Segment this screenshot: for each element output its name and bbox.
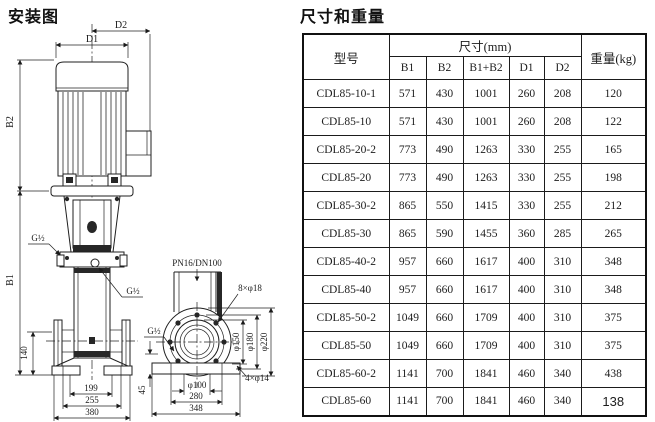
value-cell: 260 <box>509 108 544 136</box>
value-cell: 1141 <box>389 388 426 416</box>
model-cell: CDL85-30-2 <box>303 192 389 220</box>
table-row: CDL85-105714301001260208122 <box>303 108 646 136</box>
table-row: CDL85-207734901263330255198 <box>303 164 646 192</box>
value-cell: 348 <box>581 248 646 276</box>
pump-column <box>74 267 110 358</box>
value-cell: 310 <box>544 276 581 304</box>
pump-front-view <box>46 24 151 380</box>
value-cell: 208 <box>544 80 581 108</box>
dim-199-label: 199 <box>84 383 98 393</box>
col-header-b1: B1 <box>389 57 426 80</box>
value-cell: 310 <box>544 304 581 332</box>
value-cell: 1415 <box>463 192 509 220</box>
value-cell: 165 <box>581 136 646 164</box>
table-row: CDL85-50-210496601709400310375 <box>303 304 646 332</box>
value-cell: 340 <box>544 388 581 416</box>
model-cell: CDL85-10 <box>303 108 389 136</box>
value-cell: 330 <box>509 192 544 220</box>
flange-section-view: PN16/DN100 <box>137 258 275 417</box>
value-cell: 700 <box>426 360 463 388</box>
model-cell: CDL85-50-2 <box>303 304 389 332</box>
table-row: CDL85-30-28655501415330255212 <box>303 192 646 220</box>
table-row: CDL85-20-27734901263330255165 <box>303 136 646 164</box>
value-cell: 430 <box>426 108 463 136</box>
value-cell: 260 <box>509 80 544 108</box>
value-cell: 550 <box>426 192 463 220</box>
table-row: CDL85-308655901455360285265 <box>303 220 646 248</box>
dim-280-label: 280 <box>189 391 203 401</box>
col-header-weight: 重量(kg) <box>581 34 646 80</box>
value-cell: 208 <box>544 108 581 136</box>
dim-348-label: 348 <box>189 403 203 413</box>
g-half-port-label-flange: G½ <box>147 326 160 336</box>
model-cell: CDL85-10-1 <box>303 80 389 108</box>
value-cell: 212 <box>581 192 646 220</box>
value-cell: 265 <box>581 220 646 248</box>
value-cell: 1263 <box>463 136 509 164</box>
coupling-lantern <box>64 196 120 252</box>
value-cell: 285 <box>544 220 581 248</box>
value-cell: 138 <box>581 388 646 416</box>
dim-b2-label: B2 <box>5 116 16 128</box>
value-cell: 1841 <box>463 388 509 416</box>
dim-45-label: 45 <box>137 385 147 395</box>
value-cell: 310 <box>544 332 581 360</box>
fan-cover <box>56 62 128 91</box>
vent-port <box>91 259 99 267</box>
catalog-page: 安装图 尺寸和重量 <box>0 0 655 422</box>
dim-dia100-label: φ100 <box>188 380 207 390</box>
value-cell: 1263 <box>463 164 509 192</box>
value-cell: 310 <box>544 248 581 276</box>
col-header-b1b2: B1+B2 <box>463 57 509 80</box>
value-cell: 460 <box>509 360 544 388</box>
table-row: CDL85-10-15714301001260208120 <box>303 80 646 108</box>
model-cell: CDL85-50 <box>303 332 389 360</box>
value-cell: 700 <box>426 388 463 416</box>
value-cell: 438 <box>581 360 646 388</box>
dim-d2-label: D2 <box>115 20 127 31</box>
table-row: CDL85-6011417001841460340138 <box>303 388 646 416</box>
value-cell: 122 <box>581 108 646 136</box>
value-cell: 255 <box>544 164 581 192</box>
value-cell: 490 <box>426 136 463 164</box>
g-half-port-label-mid: G½ <box>126 286 139 296</box>
value-cell: 400 <box>509 248 544 276</box>
value-cell: 348 <box>581 276 646 304</box>
table-row: CDL85-5010496601709400310375 <box>303 332 646 360</box>
dim-dia150-label: φ150 <box>231 332 241 351</box>
dim-dia180-label: φ180 <box>245 332 255 351</box>
value-cell: 360 <box>509 220 544 248</box>
model-cell: CDL85-60-2 <box>303 360 389 388</box>
table-row: CDL85-60-211417001841460340438 <box>303 360 646 388</box>
value-cell: 590 <box>426 220 463 248</box>
dim-255-label: 255 <box>85 395 99 405</box>
value-cell: 340 <box>544 360 581 388</box>
base-plate-section <box>152 363 240 374</box>
value-cell: 1049 <box>389 332 426 360</box>
dim-b1-label: B1 <box>5 274 16 286</box>
value-cell: 1709 <box>463 304 509 332</box>
value-cell: 1709 <box>463 332 509 360</box>
value-cell: 1455 <box>463 220 509 248</box>
dim-140-label: 140 <box>19 346 29 360</box>
value-cell: 375 <box>581 304 646 332</box>
col-header-model: 型号 <box>303 34 389 80</box>
value-cell: 1841 <box>463 360 509 388</box>
motor-flange <box>51 186 133 196</box>
value-cell: 400 <box>509 332 544 360</box>
value-cell: 460 <box>509 388 544 416</box>
value-cell: 773 <box>389 164 426 192</box>
value-cell: 490 <box>426 164 463 192</box>
value-cell: 1001 <box>463 80 509 108</box>
model-cell: CDL85-20-2 <box>303 136 389 164</box>
value-cell: 1617 <box>463 276 509 304</box>
value-cell: 865 <box>389 220 426 248</box>
value-cell: 1141 <box>389 360 426 388</box>
model-cell: CDL85-30 <box>303 220 389 248</box>
value-cell: 773 <box>389 136 426 164</box>
value-cell: 255 <box>544 136 581 164</box>
g-half-port-label-left: G½ <box>31 233 44 243</box>
col-header-size: 尺寸(mm) <box>389 34 581 57</box>
value-cell: 660 <box>426 276 463 304</box>
model-cell: CDL85-40-2 <box>303 248 389 276</box>
value-cell: 400 <box>509 304 544 332</box>
model-cell: CDL85-20 <box>303 164 389 192</box>
flange-holes-label: 8×φ18 <box>238 283 262 293</box>
dim-d1-label: D1 <box>86 34 98 45</box>
value-cell: 1049 <box>389 304 426 332</box>
value-cell: 865 <box>389 192 426 220</box>
value-cell: 120 <box>581 80 646 108</box>
value-cell: 571 <box>389 108 426 136</box>
dim-380-label: 380 <box>85 407 99 417</box>
value-cell: 660 <box>426 304 463 332</box>
col-header-d1: D1 <box>509 57 544 80</box>
value-cell: 571 <box>389 80 426 108</box>
nameplate-logo <box>87 221 97 233</box>
size-table-body: CDL85-10-15714301001260208120CDL85-10571… <box>303 80 646 416</box>
dimensions-weight-title: 尺寸和重量 <box>300 3 385 27</box>
dimensions-weight-table: 型号 尺寸(mm) 重量(kg) B1 B2 B1+B2 D1 D2 CDL85… <box>302 33 647 417</box>
value-cell: 255 <box>544 192 581 220</box>
model-cell: CDL85-60 <box>303 388 389 416</box>
col-header-d2: D2 <box>544 57 581 80</box>
value-cell: 430 <box>426 80 463 108</box>
model-cell: CDL85-40 <box>303 276 389 304</box>
col-header-b2: B2 <box>426 57 463 80</box>
discharge-head <box>57 252 127 267</box>
value-cell: 330 <box>509 136 544 164</box>
value-cell: 660 <box>426 332 463 360</box>
table-row: CDL85-409576601617400310348 <box>303 276 646 304</box>
base-holes-label: 4×φ14 <box>245 373 269 383</box>
value-cell: 400 <box>509 276 544 304</box>
pump-installation-diagram: D2 D1 B2 B1 140 G½ G½ <box>0 0 300 422</box>
value-cell: 375 <box>581 332 646 360</box>
dim-dia220-label: φ220 <box>259 332 269 351</box>
table-row: CDL85-40-29576601617400310348 <box>303 248 646 276</box>
value-cell: 660 <box>426 248 463 276</box>
value-cell: 330 <box>509 164 544 192</box>
value-cell: 198 <box>581 164 646 192</box>
value-cell: 1001 <box>463 108 509 136</box>
value-cell: 957 <box>389 276 426 304</box>
value-cell: 1617 <box>463 248 509 276</box>
flange-spec-label: PN16/DN100 <box>172 258 222 268</box>
value-cell: 957 <box>389 248 426 276</box>
